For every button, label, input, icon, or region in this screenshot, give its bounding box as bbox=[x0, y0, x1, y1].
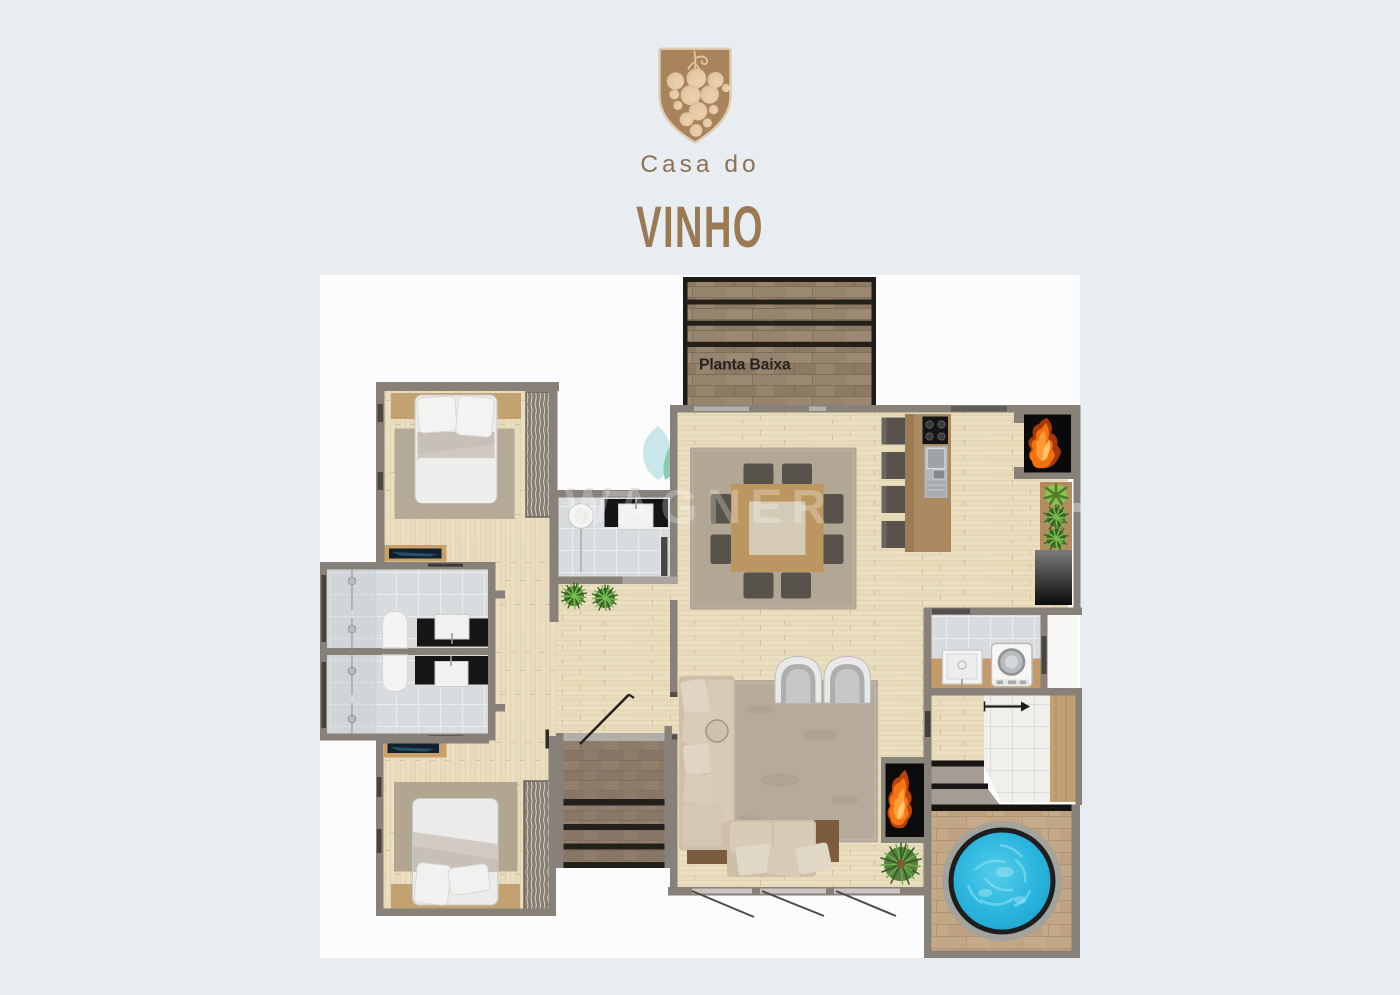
svg-text:VINHO: VINHO bbox=[636, 196, 764, 260]
svg-text:Casa do: Casa do bbox=[640, 151, 759, 178]
svg-text:Planta Baixa: Planta Baixa bbox=[699, 357, 791, 374]
svg-text:WAGNER: WAGNER bbox=[565, 481, 835, 534]
